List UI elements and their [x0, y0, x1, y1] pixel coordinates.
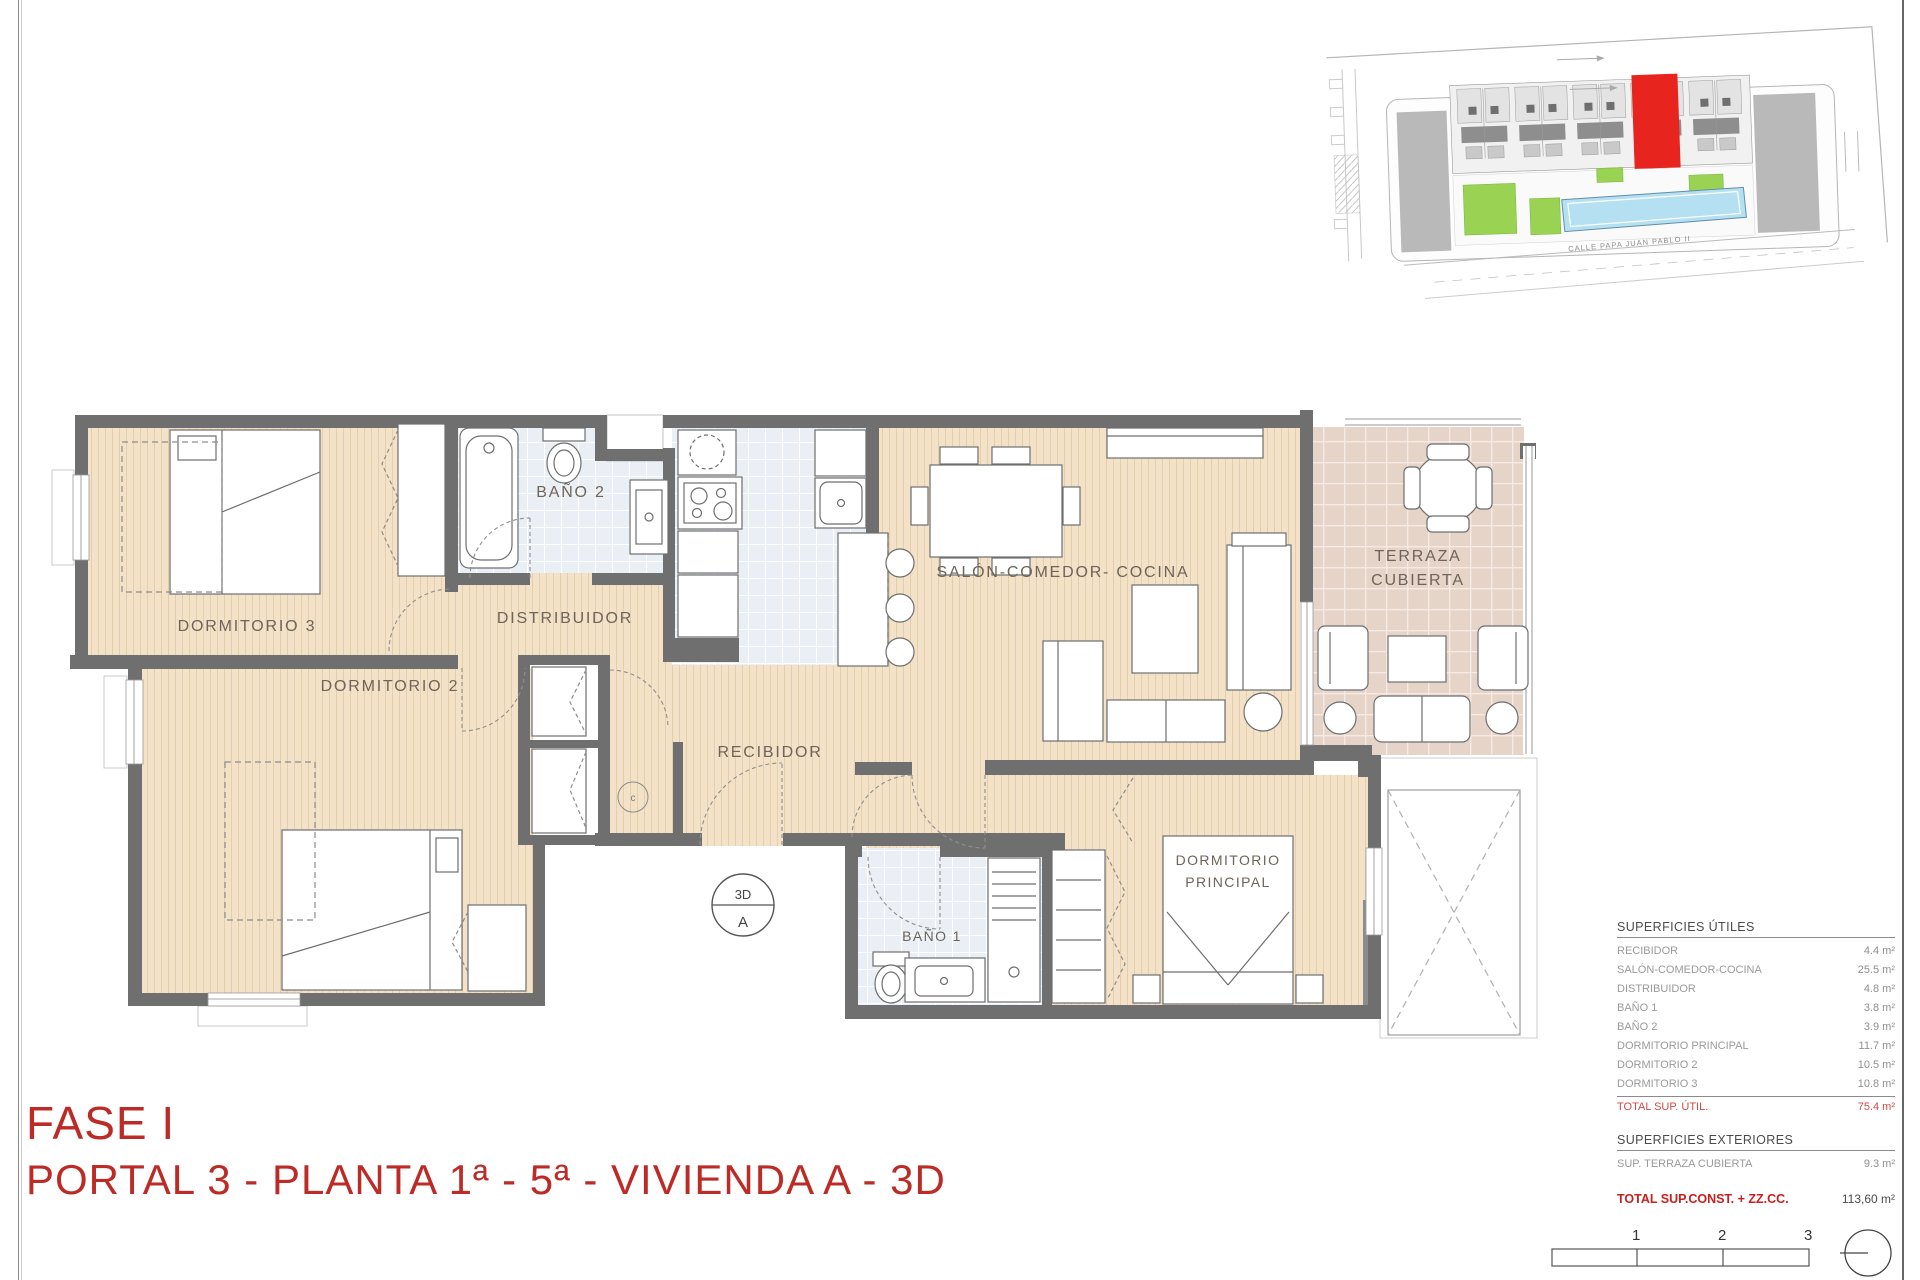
closet-marker-label: c	[631, 793, 636, 804]
table-row: DORMITORIO 310.8 m²	[1617, 1075, 1895, 1094]
table-title-exteriores: SUPERFICIES EXTERIORES	[1617, 1133, 1895, 1151]
floor-plan-sheet: CALLE PAPA JUAN PABLO II	[0, 0, 1920, 1280]
label-salon-comedor-cocina: SALÓN-COMEDOR- COCINA	[937, 564, 1190, 582]
label-bano-1: BAÑO 1	[902, 928, 962, 944]
label-dormitorio-principal-line2: PRINCIPAL	[1185, 874, 1270, 890]
surfaces-table: SUPERFICIES ÚTILES RECIBIDOR4.4 m² SALÓN…	[1617, 920, 1895, 1206]
table-row: SALÓN-COMEDOR-COCINA25.5 m²	[1617, 961, 1895, 980]
label-terraza-line1: TERRAZA	[1374, 548, 1461, 566]
label-dormitorio-3: DORMITORIO 3	[178, 618, 317, 636]
label-recibidor: RECIBIDOR	[717, 744, 822, 762]
table-row: RECIBIDOR4.4 m²	[1617, 942, 1895, 961]
site-plan-overview: CALLE PAPA JUAN PABLO II	[1326, 27, 1889, 302]
table-row: DORMITORIO PRINCIPAL11.7 m²	[1617, 1037, 1895, 1056]
scale-tick-2: 2	[1718, 1227, 1726, 1244]
highlighted-unit	[1631, 74, 1680, 172]
unit-marker-bottom: A	[738, 914, 748, 931]
table-row: DISTRIBUIDOR4.8 m²	[1617, 980, 1895, 999]
portal-title: PORTAL 3 - PLANTA 1ª - 5ª - VIVIENDA A -…	[26, 1156, 946, 1204]
void-area	[1363, 758, 1537, 1038]
table-row: SUP. TERRAZA CUBIERTA9.3 m²	[1617, 1155, 1895, 1174]
label-terraza-line2: CUBIERTA	[1371, 572, 1465, 590]
table-title-utiles: SUPERFICIES ÚTILES	[1617, 920, 1895, 938]
table-total-construida: TOTAL SUP.CONST. + ZZ.CC. 113,60 m²	[1617, 1192, 1895, 1206]
table-total-utiles: TOTAL SUP. ÚTIL.75.4 m²	[1617, 1096, 1895, 1117]
table-row: BAÑO 13.8 m²	[1617, 999, 1895, 1018]
scale-tick-1: 1	[1632, 1227, 1640, 1244]
scale-tick-3: 3	[1804, 1227, 1812, 1244]
label-dormitorio-2: DORMITORIO 2	[321, 678, 460, 696]
label-bano-2: BAÑO 2	[536, 484, 606, 502]
label-distribuidor: DISTRIBUIDOR	[497, 610, 633, 628]
table-row: DORMITORIO 210.5 m²	[1617, 1056, 1895, 1075]
label-dormitorio-principal-line1: DORMITORIO	[1176, 852, 1281, 868]
unit-marker-top: 3D	[735, 887, 752, 902]
phase-title: FASE I	[26, 1096, 175, 1150]
apartment-floor-plan: c 3D A	[52, 410, 1537, 1038]
table-row: BAÑO 23.9 m²	[1617, 1018, 1895, 1037]
